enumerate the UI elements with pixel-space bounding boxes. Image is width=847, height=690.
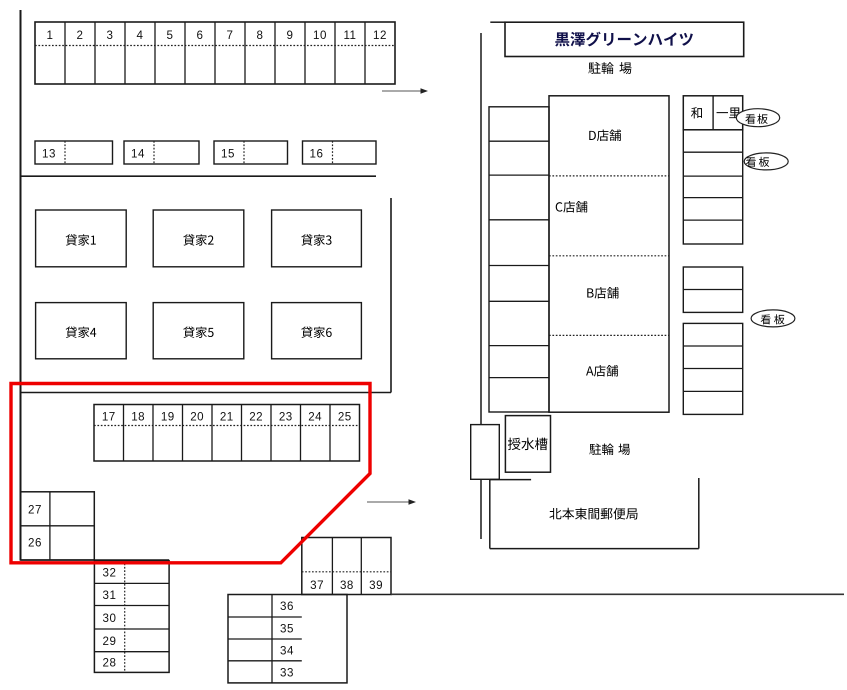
- svg-text:29: 29: [103, 635, 117, 648]
- svg-text:12: 12: [373, 29, 387, 42]
- svg-text:14: 14: [131, 148, 145, 161]
- svg-text:27: 27: [28, 504, 42, 517]
- svg-text:4: 4: [137, 29, 144, 42]
- svg-text:17: 17: [102, 411, 116, 424]
- svg-text:28: 28: [103, 657, 117, 670]
- svg-text:7: 7: [227, 29, 234, 42]
- svg-text:23: 23: [279, 411, 293, 424]
- svg-text:30: 30: [103, 612, 117, 625]
- svg-text:39: 39: [369, 579, 383, 592]
- svg-text:5: 5: [167, 29, 174, 42]
- svg-text:9: 9: [287, 29, 294, 42]
- svg-text:13: 13: [42, 148, 56, 161]
- svg-text:26: 26: [28, 537, 42, 550]
- svg-text:35: 35: [280, 623, 294, 636]
- svg-text:24: 24: [308, 411, 322, 424]
- svg-text:38: 38: [340, 579, 354, 592]
- svg-text:33: 33: [280, 666, 294, 679]
- svg-text:2: 2: [77, 29, 84, 42]
- svg-text:10: 10: [313, 29, 327, 42]
- svg-text:20: 20: [190, 411, 204, 424]
- svg-text:19: 19: [161, 411, 175, 424]
- svg-text:18: 18: [131, 411, 145, 424]
- svg-text:34: 34: [280, 644, 294, 657]
- svg-text:36: 36: [280, 600, 294, 613]
- svg-text:16: 16: [310, 148, 324, 161]
- svg-text:32: 32: [103, 567, 117, 580]
- svg-text:15: 15: [221, 148, 235, 161]
- svg-text:37: 37: [310, 579, 324, 592]
- svg-text:11: 11: [343, 29, 356, 42]
- svg-text:3: 3: [107, 29, 114, 42]
- svg-text:22: 22: [249, 411, 263, 424]
- svg-text:1: 1: [47, 29, 54, 42]
- svg-text:6: 6: [197, 29, 204, 42]
- svg-text:25: 25: [338, 411, 352, 424]
- svg-text:31: 31: [103, 589, 117, 602]
- svg-text:21: 21: [220, 411, 234, 424]
- svg-text:8: 8: [257, 29, 264, 42]
